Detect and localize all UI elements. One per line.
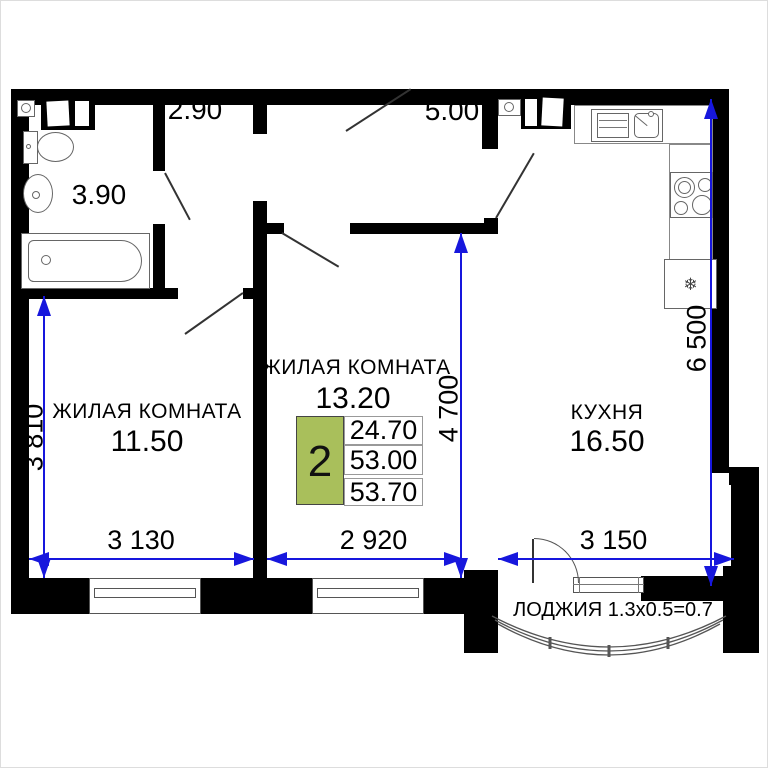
kitchen-area-label: 16.50 (507, 425, 707, 459)
total-area-cell: 53.70 (344, 478, 423, 506)
wall-room2-top-corner (484, 218, 498, 234)
kitchen-sink-faucet (648, 111, 654, 117)
toilet-bowl (37, 132, 74, 162)
wall-bottom-mid (201, 578, 312, 614)
vent-pipe-kitchen-icon (504, 102, 514, 112)
dim-arrow (454, 558, 468, 578)
stove-burner-1-inner (678, 181, 691, 194)
dim-arrow (704, 99, 718, 119)
dim-text-room1-height: 3 810 (19, 368, 50, 508)
window-room1-frame (94, 588, 196, 598)
room2-name-label: ЖИЛАЯ КОМНАТА (256, 356, 456, 380)
window-room2-frame (317, 588, 419, 598)
total-area-value: 53.70 (350, 477, 418, 507)
wall-middle-top-stub (253, 105, 267, 134)
door-room2-swing (281, 232, 339, 268)
vent-shaft-kitchen-duct2 (541, 97, 563, 126)
bathtub-faucet (41, 255, 51, 265)
bathroom-area-label: 3.90 (59, 179, 139, 211)
dim-text-kitchen-width: 3 150 (541, 525, 686, 556)
wall-bottom-left (11, 578, 89, 614)
vent-shaft-bathroom-duct2 (75, 101, 89, 126)
dim-text-room2-width: 2 920 (301, 525, 446, 556)
room2-area-label: 13.20 (253, 382, 453, 416)
dim-arrow (37, 296, 51, 316)
vent-shaft-bathroom-duct (46, 100, 69, 126)
hall-area-label: 2.90 (145, 94, 245, 126)
window-kitchen-balcony-mullion (573, 584, 644, 585)
kitchen-sink-drainboard (597, 113, 629, 138)
floor-area-value: 53.00 (350, 445, 418, 475)
door-kitchen-swing (495, 153, 535, 219)
loggia-label: ЛОДЖИЯ 1.3x0.5=0.7 (493, 599, 733, 622)
room1-area-label: 11.50 (47, 425, 247, 459)
wall-top (11, 89, 729, 105)
dim-arrow (267, 552, 287, 566)
dim-arrow (704, 566, 718, 586)
dim-line-kitchen-width (498, 558, 734, 560)
toilet-tank-button (26, 144, 31, 149)
dim-arrow (714, 552, 734, 566)
dim-line-room1-width (29, 558, 254, 560)
room1-name-label: ЖИЛАЯ КОМНАТА (47, 400, 247, 424)
door-bathroom-swing (164, 173, 191, 221)
door-room1-swing (184, 292, 243, 335)
floor-area-cell: 53.00 (344, 445, 423, 475)
stove-burner-4 (692, 195, 712, 215)
dim-arrow (234, 552, 254, 566)
window-kitchen-balcony-jamb-left (579, 577, 580, 593)
floor-plan: ❄ 3 130 2 920 3 150 3 810 4 700 6 500 3.… (0, 0, 768, 768)
dim-line-room2-width (267, 558, 464, 560)
kitchen-name-label: КУХНЯ (507, 401, 707, 425)
vent-shaft-kitchen-duct (525, 99, 537, 126)
dim-arrow (37, 558, 51, 578)
stove-burner-3 (674, 201, 688, 215)
kitchen-sink-drainboard-line2 (599, 127, 627, 128)
rooms-count-badge: 2 (296, 416, 344, 505)
window-kitchen-balcony (573, 577, 644, 593)
wall-left (11, 89, 29, 614)
kitchen-sink-drainboard-line (599, 120, 627, 121)
entry-area-label: 5.00 (402, 95, 502, 127)
dim-arrow (498, 552, 518, 566)
dim-text-room1-width: 3 130 (71, 525, 211, 556)
dim-arrow (454, 233, 468, 253)
window-kitchen-balcony-jamb-right (638, 577, 639, 593)
rooms-count-value: 2 (308, 437, 332, 486)
living-area-cell: 24.70 (344, 416, 423, 445)
wall-bottom-right (424, 578, 464, 614)
bathroom-sink-drain (32, 191, 40, 199)
living-area-value: 24.70 (350, 415, 418, 445)
dim-text-kitchen-height: 6 500 (682, 269, 713, 409)
vent-pipe-bathroom-icon (21, 103, 31, 113)
